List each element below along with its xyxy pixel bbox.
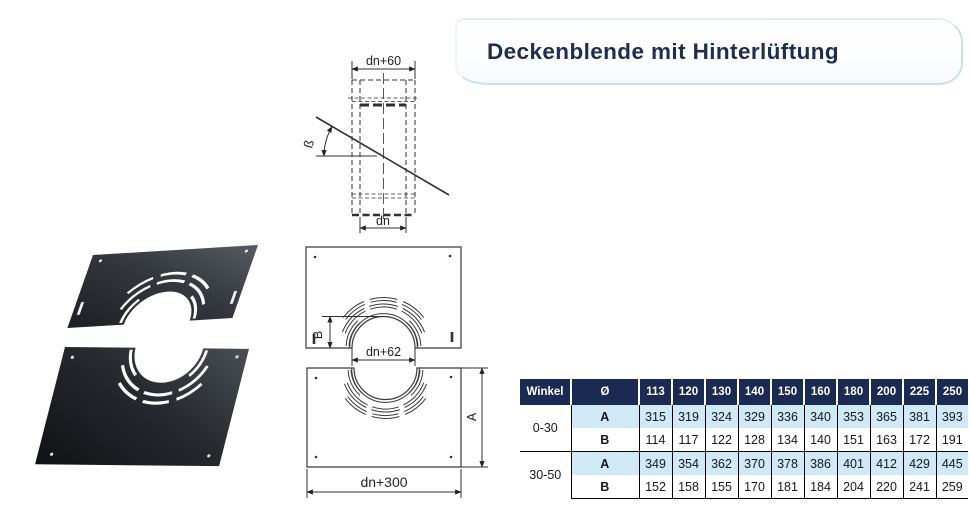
table-cell: 151 [837,428,870,452]
table-cell: 412 [870,452,903,476]
product-photo [10,225,300,475]
table-header-row: Winkel Ø 113 120 130 140 150 160 180 200… [520,379,968,405]
table-cell: 117 [672,428,705,452]
dim-label-dn300: dn+300 [360,474,407,490]
col-header-size: 120 [672,379,705,405]
table-cell: 170 [738,475,771,499]
page: Deckenblende mit Hinterlüftung [0,0,970,530]
table-cell: 191 [936,428,968,452]
table-row: 0-30 A 315 319 324 329 336 340 353 365 3… [520,405,968,428]
table-cell: 184 [804,475,837,499]
pipe-schematic: dn+60 ß dn [300,52,470,247]
table-row: 30-50 A 349 354 362 370 378 386 401 412 … [520,452,968,476]
col-header-size: 250 [936,379,968,405]
dim-label-dn60: dn+60 [366,54,401,68]
table-cell: 381 [903,405,936,428]
table-cell: 445 [936,452,968,476]
col-header-size: 160 [804,379,837,405]
table-cell: 386 [804,452,837,476]
dimension-table: Winkel Ø 113 120 130 140 150 160 180 200… [520,379,968,499]
col-header-size: 140 [738,379,771,405]
col-header-size: 200 [870,379,903,405]
table-cell: 336 [771,405,804,428]
table-cell: 158 [672,475,705,499]
table-cell: 315 [639,405,672,428]
winkel-range: 30-50 [520,452,571,499]
row-label: B [571,428,639,452]
table-cell: 349 [639,452,672,476]
col-header-size: 130 [705,379,738,405]
table-cell: 134 [771,428,804,452]
table-cell: 181 [771,475,804,499]
title-banner: Deckenblende mit Hinterlüftung [455,18,963,85]
table-cell: 152 [639,475,672,499]
dim-label-a: A [465,412,479,421]
table-cell: 365 [870,405,903,428]
col-header-size: 180 [837,379,870,405]
row-label: A [571,452,639,476]
table-cell: 259 [936,475,968,499]
col-header-size: 150 [771,379,804,405]
table-cell: 122 [705,428,738,452]
photo-plate-bottom [35,347,249,466]
row-label: A [571,405,639,428]
table-cell: 378 [771,452,804,476]
row-label: B [571,475,639,499]
photo-plate-top [67,245,258,328]
dim-label-b: B [311,331,325,339]
table-cell: 220 [870,475,903,499]
table-cell: 429 [903,452,936,476]
table-row: B 114 117 122 128 134 140 151 163 172 19… [520,428,968,452]
table-cell: 319 [672,405,705,428]
table-cell: 340 [804,405,837,428]
table-cell: 140 [804,428,837,452]
table-cell: 401 [837,452,870,476]
table-cell: 324 [705,405,738,428]
technical-drawing-2d: B dn+62 A dn+300 [295,245,500,510]
table-cell: 128 [738,428,771,452]
col-header-size: 113 [639,379,672,405]
winkel-range: 0-30 [520,405,571,452]
table-cell: 204 [837,475,870,499]
table-cell: 370 [738,452,771,476]
col-header-winkel: Winkel [520,379,571,405]
page-title: Deckenblende mit Hinterlüftung [487,39,839,65]
ventilation-slot-arc [142,401,168,403]
table-cell: 393 [936,405,968,428]
angle-label-beta: ß [300,138,317,150]
dim-label-dn62: dn+62 [366,345,401,359]
table-cell: 354 [672,452,705,476]
table-cell: 172 [903,428,936,452]
table-cell: 155 [705,475,738,499]
col-header-diameter: Ø [571,379,639,405]
table-cell: 362 [705,452,738,476]
table-cell: 114 [639,428,672,452]
table-cell: 241 [903,475,936,499]
col-header-size: 225 [903,379,936,405]
dim-label-dn: dn [376,214,390,228]
table-cell: 163 [870,428,903,452]
table-cell: 353 [837,405,870,428]
table-cell: 329 [738,405,771,428]
table-row: B 152 158 155 170 181 184 204 220 241 25… [520,475,968,499]
